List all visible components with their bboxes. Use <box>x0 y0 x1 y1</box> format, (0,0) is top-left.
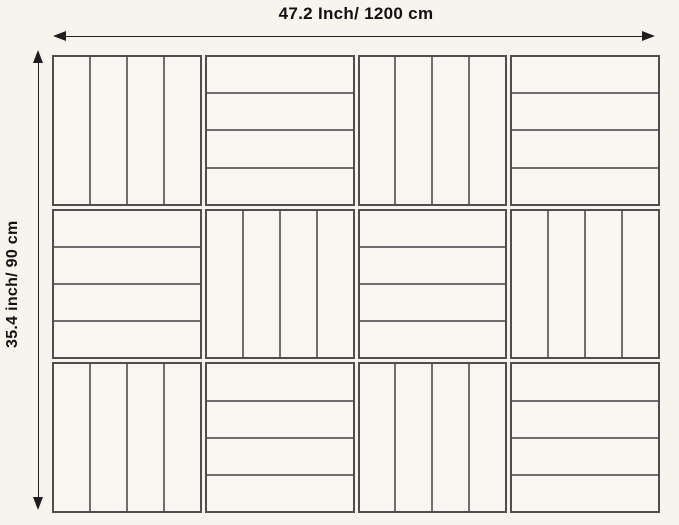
tile-slat <box>512 167 658 204</box>
deck-tile-r1c2 <box>205 55 355 206</box>
deck-tile-dimension-diagram: 47.2 Inch/ 1200 cm 35.4 inch/ 90 cm <box>0 0 679 525</box>
width-dimension-label: 47.2 Inch/ 1200 cm <box>52 4 660 24</box>
tile-slat <box>207 57 353 92</box>
tile-slat <box>512 364 658 399</box>
tile-slat <box>512 211 547 358</box>
deck-tile-r3c3 <box>358 362 508 513</box>
tile-slat <box>431 57 468 204</box>
deck-tile-r1c4 <box>510 55 660 206</box>
tile-slat <box>89 57 126 204</box>
tile-slat <box>468 364 505 511</box>
tile-slat <box>512 400 658 437</box>
tile-slat <box>207 474 353 511</box>
deck-tile-r1c1 <box>52 55 202 206</box>
deck-tile-r1c3 <box>358 55 508 206</box>
tile-slat <box>242 211 279 358</box>
arrowhead-right-icon <box>642 31 655 41</box>
arrowhead-left-icon <box>53 31 66 41</box>
arrowhead-down-icon <box>33 497 43 510</box>
tile-slat <box>54 246 200 283</box>
tile-slat <box>126 364 163 511</box>
tile-slat <box>54 283 200 320</box>
tile-slat <box>621 211 658 358</box>
tile-slat <box>54 57 89 204</box>
tile-slat <box>360 57 395 204</box>
tile-slat <box>279 211 316 358</box>
tile-slat <box>54 211 200 246</box>
tile-slat <box>207 400 353 437</box>
tile-slat <box>207 211 242 358</box>
height-dimension-arrow <box>38 52 39 508</box>
tile-slat <box>394 57 431 204</box>
tile-slat <box>207 364 353 399</box>
tile-slat <box>89 364 126 511</box>
deck-tile-r3c2 <box>205 362 355 513</box>
tile-slat <box>163 57 200 204</box>
height-dimension-label: 35.4 inch/ 90 cm <box>4 55 30 513</box>
tile-slat <box>512 129 658 166</box>
tile-slat <box>207 167 353 204</box>
deck-tile-r3c4 <box>510 362 660 513</box>
width-dimension-arrow <box>55 36 653 37</box>
deck-tile-r2c2 <box>205 209 355 360</box>
tile-slat <box>394 364 431 511</box>
tile-slat <box>54 364 89 511</box>
tile-slat <box>316 211 353 358</box>
tile-slat <box>126 57 163 204</box>
tile-slat <box>468 57 505 204</box>
tile-slat <box>431 364 468 511</box>
tile-slat <box>512 474 658 511</box>
tile-slat <box>360 283 506 320</box>
tile-slat <box>207 129 353 166</box>
tile-slat <box>360 211 506 246</box>
tile-slat <box>584 211 621 358</box>
tile-slat <box>207 437 353 474</box>
deck-tile-r2c3 <box>358 209 508 360</box>
tile-slat <box>207 92 353 129</box>
tile-slat <box>360 246 506 283</box>
tile-slat <box>360 364 395 511</box>
tile-slat <box>54 320 200 357</box>
deck-tile-r2c1 <box>52 209 202 360</box>
tile-slat <box>512 92 658 129</box>
deck-tile-r3c1 <box>52 362 202 513</box>
tile-slat <box>163 364 200 511</box>
arrowhead-up-icon <box>33 50 43 63</box>
tile-slat <box>512 57 658 92</box>
tile-grid <box>52 55 660 513</box>
tile-slat <box>512 437 658 474</box>
tile-slat <box>547 211 584 358</box>
tile-slat <box>360 320 506 357</box>
deck-tile-r2c4 <box>510 209 660 360</box>
